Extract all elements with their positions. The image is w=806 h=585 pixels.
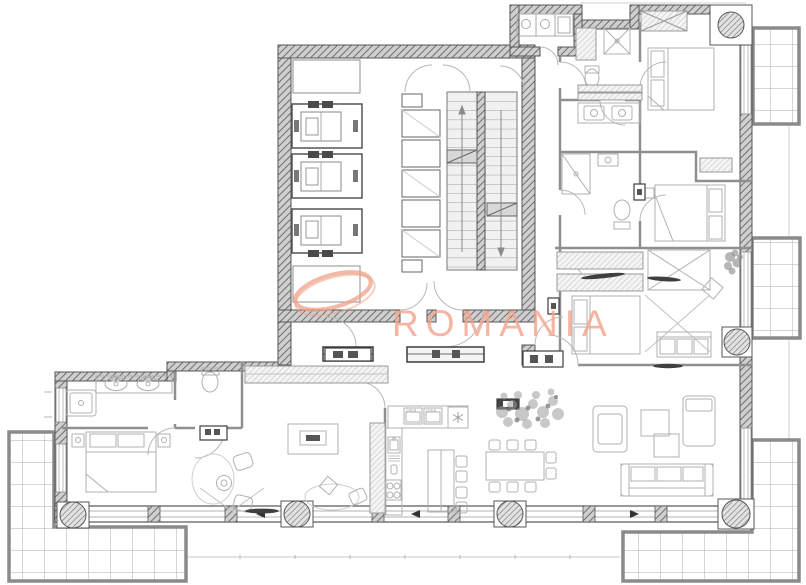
dining-chairs [489, 440, 556, 492]
closet-strip [700, 158, 732, 172]
elevator-door [322, 151, 333, 158]
kitchen-sink [388, 437, 400, 453]
oven-label: OVEN [426, 409, 437, 413]
side-table [217, 476, 232, 491]
closet-shelves [576, 28, 596, 60]
bedroom2 [562, 154, 732, 241]
balcony-mid-right [752, 238, 800, 338]
door-arc [359, 382, 385, 408]
pillow [90, 434, 116, 447]
master-suite [66, 368, 264, 513]
column [57, 502, 89, 528]
column [281, 501, 313, 527]
shower [604, 28, 630, 54]
fridge [448, 407, 468, 428]
island [428, 450, 454, 512]
nightstand [72, 434, 84, 447]
door-arc [560, 62, 586, 88]
elevator-door [308, 101, 319, 108]
core-storage-top [293, 60, 360, 93]
door-arc [640, 62, 666, 88]
bar-stools [456, 456, 467, 513]
armchair [348, 487, 368, 506]
elevator-door [322, 101, 333, 108]
appliance [558, 17, 570, 33]
sofa [657, 332, 711, 357]
door-arc [500, 66, 524, 90]
side-table-tilted [319, 476, 337, 494]
elevator-door [308, 151, 319, 158]
door-arc [540, 47, 558, 65]
elevator [292, 101, 362, 148]
bottle [391, 465, 397, 474]
shower [562, 154, 590, 194]
elevator [292, 209, 362, 257]
wardrobe-crossbox [648, 250, 710, 290]
watermark-text: ROMANIA [392, 303, 614, 344]
elevator-bank [292, 60, 440, 302]
armchair-lounge [593, 406, 627, 452]
pillow [651, 80, 664, 106]
entry-hall [245, 366, 388, 513]
nightstand [158, 434, 170, 447]
stair-divider-wall [477, 92, 485, 270]
round-rug [192, 454, 234, 504]
living-room [305, 396, 715, 510]
column [722, 327, 752, 357]
entry-door-unit [407, 347, 484, 362]
column [710, 5, 752, 45]
side-table-tilted [702, 278, 723, 299]
ac-unit [200, 426, 227, 440]
vertical-garden [496, 389, 564, 430]
core-wall-right-upper [522, 58, 535, 315]
south-facade [55, 506, 753, 522]
cooktop [386, 480, 401, 500]
elevator-door [322, 250, 333, 257]
utility-sink [541, 20, 550, 29]
tv-unit [288, 424, 338, 454]
sofa [621, 464, 713, 496]
right-wall-windows [741, 42, 751, 502]
bed [648, 48, 714, 110]
dining-area [486, 440, 556, 492]
furniture [66, 11, 732, 515]
column [494, 501, 526, 527]
sink [598, 154, 618, 166]
toilet [614, 200, 630, 229]
toilet [585, 66, 599, 87]
balcony-top-right [753, 28, 799, 124]
kitchen-area [385, 406, 468, 515]
appliance-labels: OVEN OVEN [406, 409, 437, 413]
cabinet-unit [523, 351, 563, 367]
tall-cabinet [370, 423, 385, 513]
elevator [292, 151, 362, 198]
pillow [118, 434, 144, 447]
cabinet-unit [325, 348, 371, 361]
wardrobe-rail [557, 252, 643, 269]
oven-label: OVEN [406, 409, 417, 413]
bathtub [66, 390, 96, 416]
door-arc [405, 65, 432, 92]
pillow [709, 216, 722, 239]
utility-sink [522, 20, 531, 29]
drain-grate [388, 456, 400, 461]
pillow [651, 51, 664, 77]
stair-core [447, 92, 517, 270]
armchair [232, 452, 254, 472]
electrical-box [634, 184, 645, 200]
utility-wall-bottom-a [510, 47, 540, 56]
wing-wall-step [630, 5, 639, 29]
wardrobe-rail [578, 85, 642, 92]
wardrobe-rail [578, 93, 642, 100]
floor-plan-canvas: OVEN OVEN ROMANIA [0, 0, 806, 585]
utility-wall-top [510, 5, 582, 14]
pillow [709, 189, 722, 212]
duct-shafts [402, 94, 440, 272]
double-sink-counter [578, 103, 640, 123]
toilet [202, 368, 219, 392]
coffee-table [654, 434, 679, 457]
coffee-table [641, 410, 669, 436]
snowflake-icon [453, 412, 463, 423]
utility-room [517, 14, 573, 36]
chaise [683, 396, 715, 446]
door-arc [443, 65, 470, 92]
elevator-door [308, 250, 319, 257]
column [718, 499, 754, 529]
core-wall-top [278, 45, 535, 58]
dining-table [486, 452, 544, 480]
bed [655, 185, 725, 241]
floor-plan-page: OVEN OVEN ROMANIA [0, 0, 806, 585]
wardrobe-crossbox [641, 11, 687, 31]
